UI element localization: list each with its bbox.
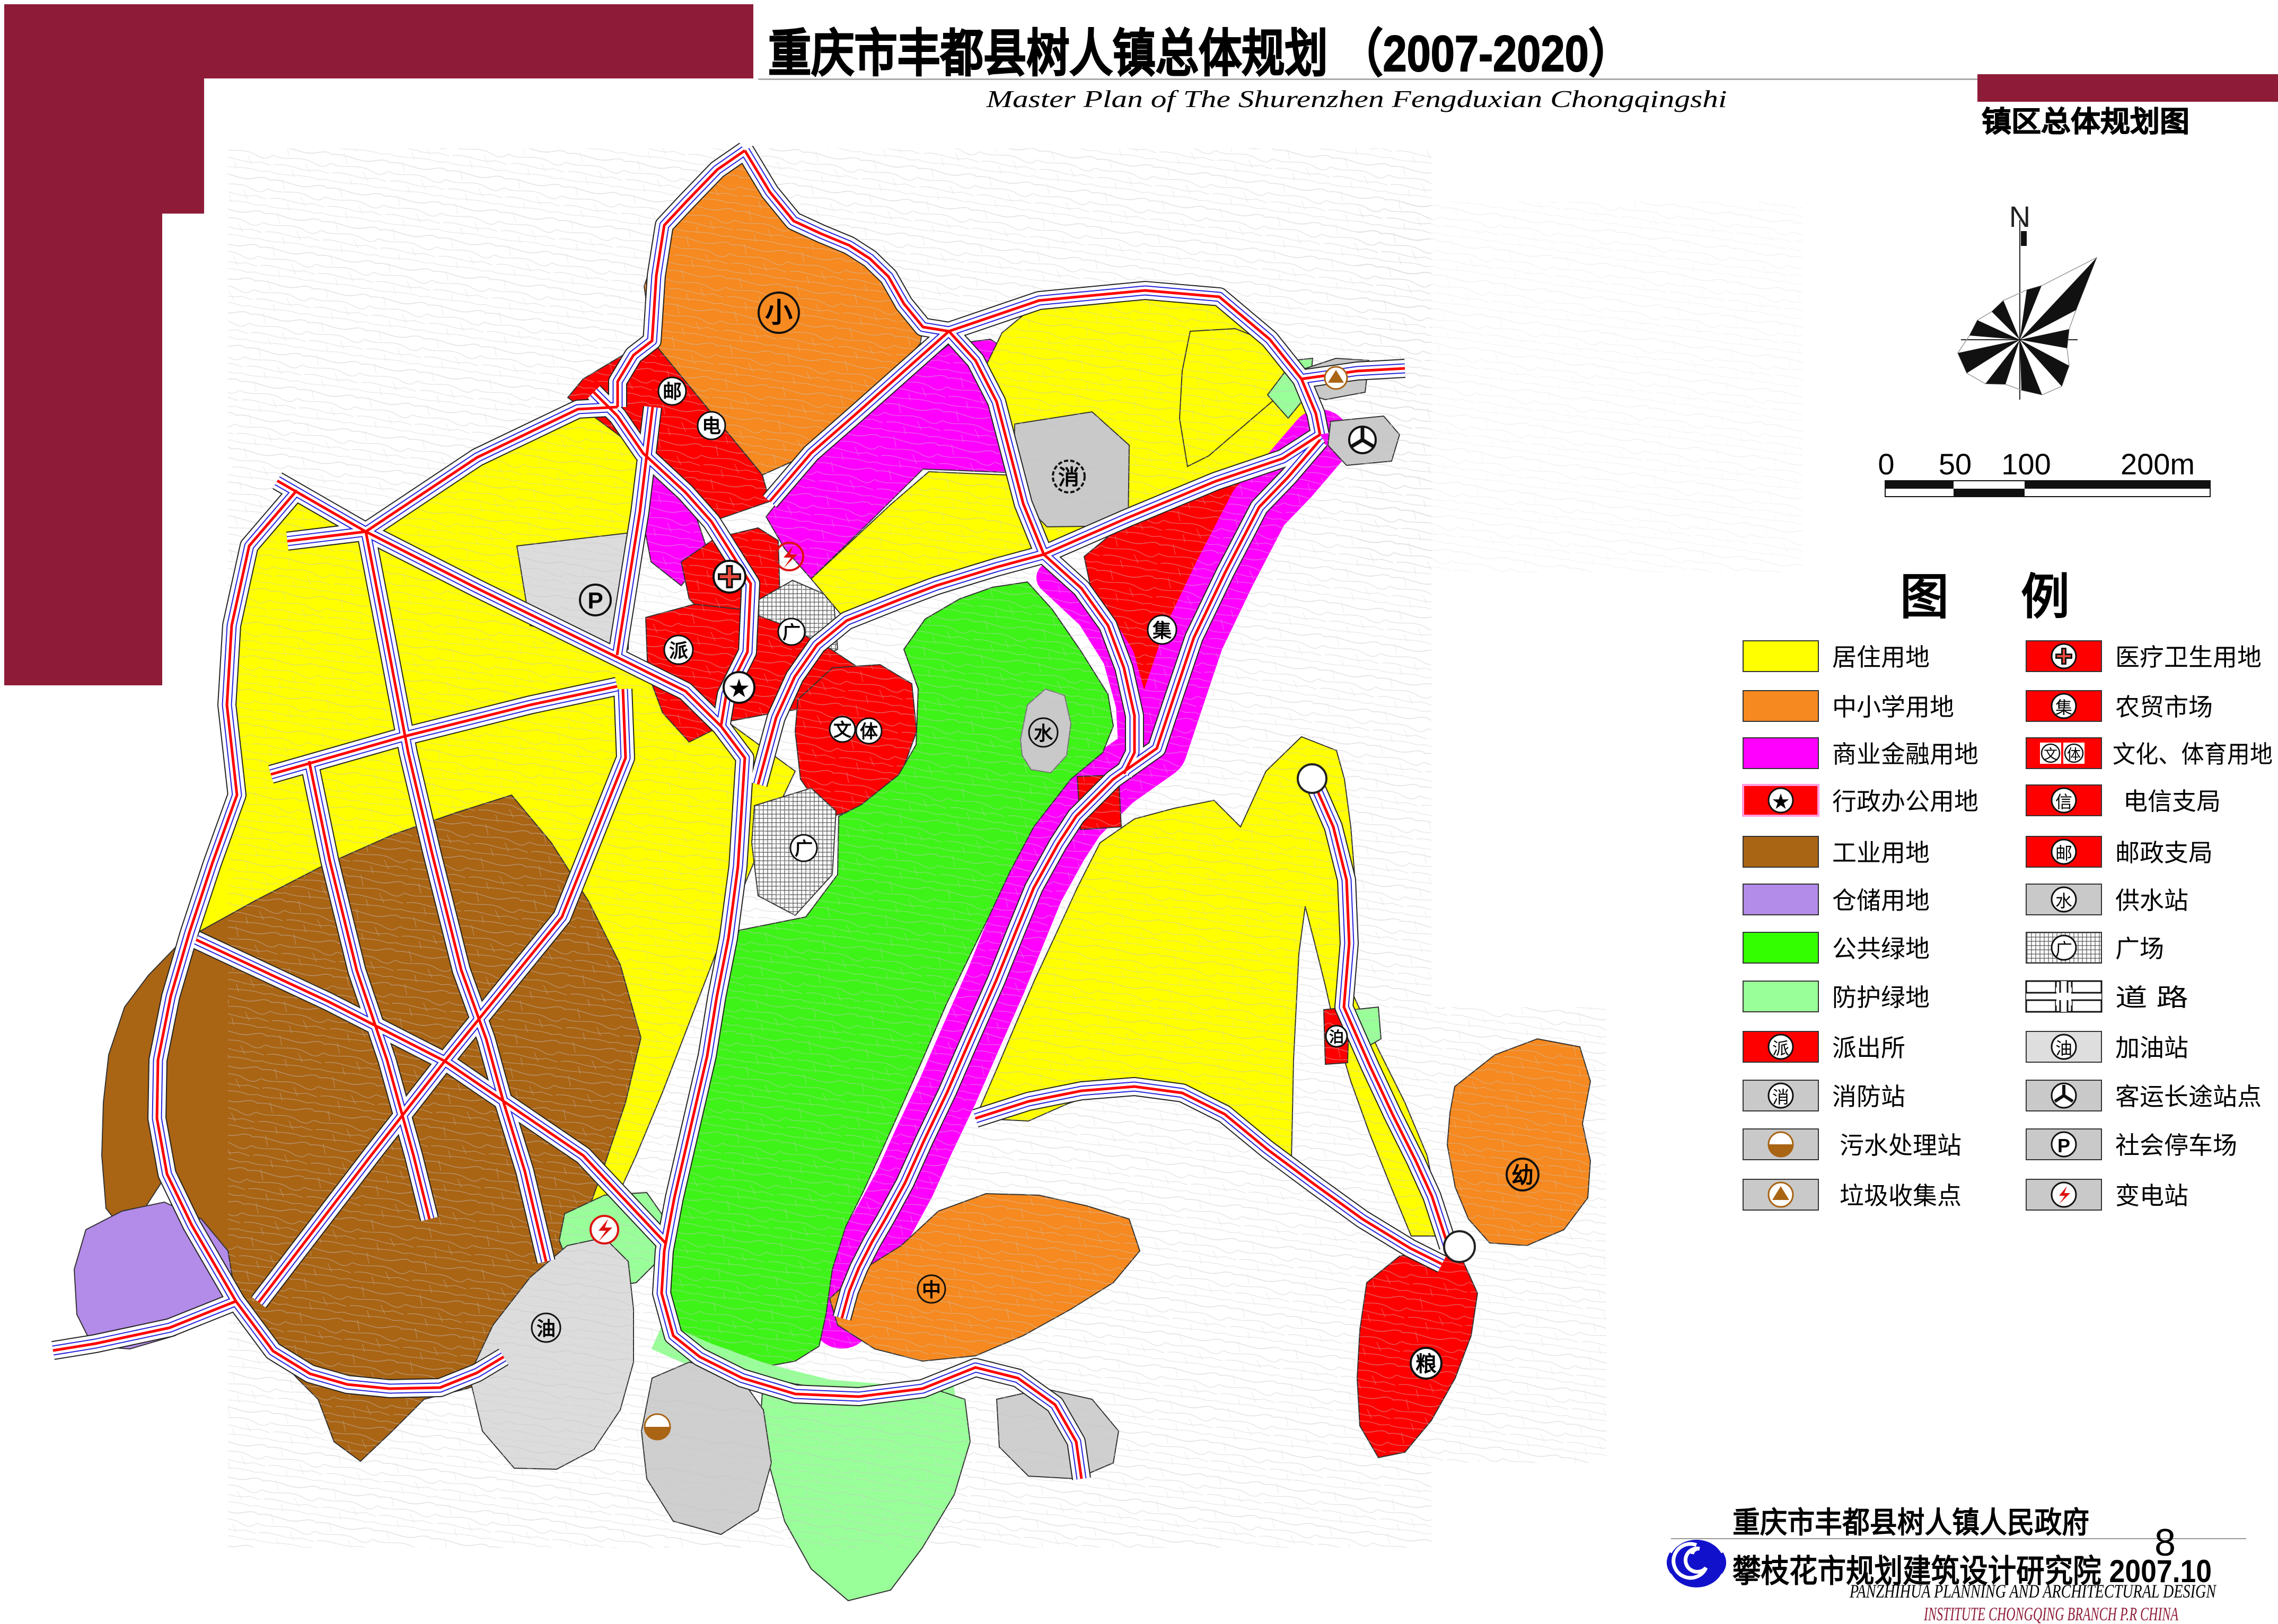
svg-text:粮: 粮 [1415, 1353, 1437, 1376]
svg-text:泊: 泊 [1329, 1029, 1344, 1045]
svg-text:消: 消 [1772, 1088, 1789, 1107]
svg-text:垃圾收集点: 垃圾收集点 [1840, 1182, 1962, 1210]
svg-text:中小学用地: 中小学用地 [1832, 693, 1954, 721]
svg-text:电: 电 [702, 415, 721, 437]
svg-text:集: 集 [1152, 620, 1172, 641]
svg-text:客运长途站点: 客运长途站点 [2115, 1083, 2262, 1110]
svg-text:变电站: 变电站 [2115, 1182, 2188, 1210]
svg-text:★: ★ [727, 675, 750, 703]
svg-text:油: 油 [2055, 1039, 2072, 1058]
svg-text:消防站: 消防站 [1832, 1083, 1905, 1110]
svg-text:幼: 幼 [1511, 1163, 1534, 1188]
svg-text:仓储用地: 仓储用地 [1832, 887, 1930, 914]
svg-text:派: 派 [1772, 1039, 1789, 1058]
svg-text:体: 体 [2067, 746, 2081, 762]
svg-text:派出所: 派出所 [1832, 1034, 1905, 1062]
svg-text:油: 油 [536, 1318, 556, 1339]
svg-text:信: 信 [2055, 792, 2072, 811]
svg-text:Master Plan of The Shurenz: Master Plan of The Shurenzhen Fengduxian… [986, 85, 1727, 112]
svg-text:P: P [587, 588, 603, 614]
svg-text:0: 0 [1878, 447, 1894, 481]
svg-text:商业金融用地: 商业金融用地 [1832, 740, 1978, 768]
svg-text:医疗卫生用地: 医疗卫生用地 [2115, 643, 2262, 671]
svg-text:集: 集 [2055, 698, 2072, 717]
svg-text:社会停车场: 社会停车场 [2115, 1132, 2237, 1159]
svg-text:文: 文 [833, 720, 851, 740]
svg-text:中: 中 [922, 1279, 941, 1301]
svg-text:防护绿地: 防护绿地 [1832, 984, 1930, 1011]
svg-text:重庆市丰都县树人镇总体规划 （2007-2020）: 重庆市丰都县树人镇总体规划 （2007-2020） [768, 25, 1632, 82]
svg-text:派: 派 [669, 640, 688, 661]
svg-text:邮: 邮 [2055, 844, 2072, 863]
svg-text:电信支局: 电信支局 [2123, 788, 2221, 815]
svg-text:工业用地: 工业用地 [1832, 839, 1930, 867]
svg-text:PANZHIHUA PLANNING AND ARCHITE: PANZHIHUA PLANNING AND ARCHITECTURAL DES… [1849, 1581, 2217, 1602]
svg-text:行政办公用地: 行政办公用地 [1832, 788, 1978, 815]
svg-text:图: 图 [1900, 570, 1949, 624]
svg-text:邮政支局: 邮政支局 [2115, 839, 2213, 867]
svg-text:道 路: 道 路 [2115, 984, 2188, 1011]
svg-text:公共绿地: 公共绿地 [1832, 935, 1930, 963]
svg-text:INSTITUTE CHONGQING BRANCH P.R: INSTITUTE CHONGQING BRANCH P.R CHINA [1923, 1603, 2178, 1624]
svg-text:广: 广 [782, 623, 801, 643]
svg-text:水: 水 [1034, 722, 1053, 744]
svg-text:污水处理站: 污水处理站 [1840, 1132, 1962, 1159]
svg-text:文化、体育用地: 文化、体育用地 [2113, 740, 2273, 768]
svg-text:广: 广 [795, 839, 813, 859]
svg-text:广: 广 [2055, 940, 2072, 959]
svg-text:例: 例 [2021, 570, 2070, 624]
svg-text:消: 消 [1058, 466, 1079, 489]
svg-text:50: 50 [1939, 447, 1972, 481]
svg-text:农贸市场: 农贸市场 [2115, 693, 2213, 721]
svg-text:供水站: 供水站 [2115, 887, 2188, 914]
svg-text:邮: 邮 [663, 381, 682, 402]
svg-text:加油站: 加油站 [2115, 1034, 2188, 1062]
svg-text:居住用地: 居住用地 [1832, 643, 1930, 671]
svg-text:广场: 广场 [2115, 935, 2164, 963]
svg-text:体: 体 [860, 722, 878, 742]
svg-text:镇区总体规划图: 镇区总体规划图 [1982, 106, 2189, 138]
svg-text:★: ★ [1771, 790, 1790, 814]
svg-text:文: 文 [2044, 746, 2057, 762]
svg-text:小: 小 [765, 298, 793, 329]
svg-text:P: P [2057, 1135, 2070, 1157]
svg-text:100: 100 [2001, 447, 2051, 481]
svg-text:重庆市丰都县树人镇人民政府: 重庆市丰都县树人镇人民政府 [1732, 1506, 2089, 1539]
svg-text:水: 水 [2055, 892, 2072, 911]
svg-text:200m: 200m [2121, 447, 2195, 481]
